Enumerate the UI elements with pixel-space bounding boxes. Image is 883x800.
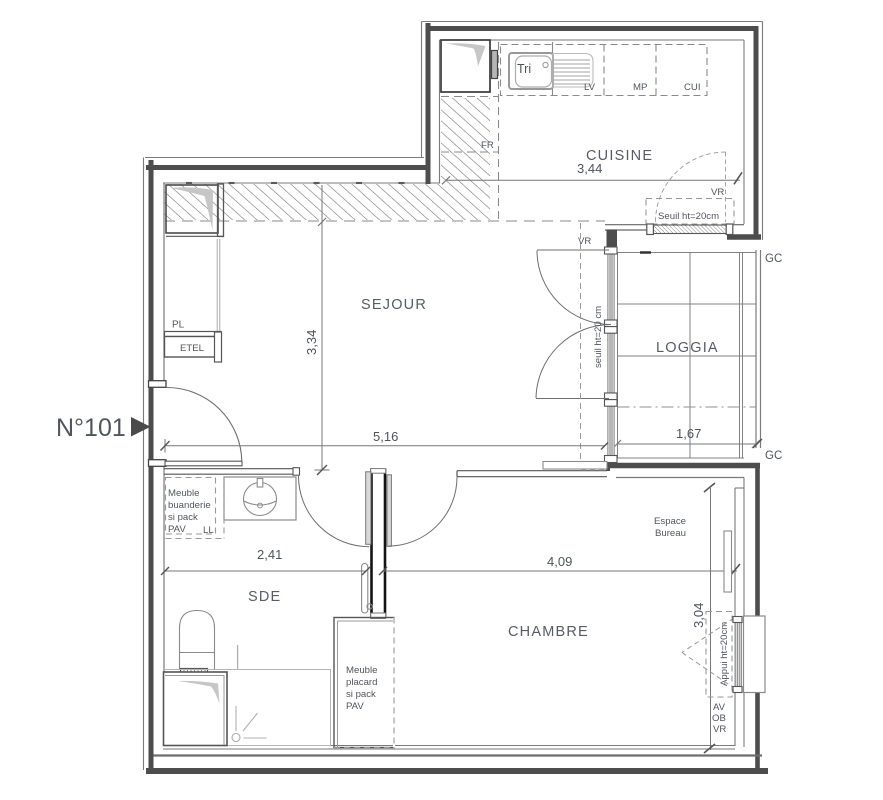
svg-text:3,44: 3,44 [577,161,602,176]
svg-text:Tri: Tri [517,62,531,76]
svg-text:N°101: N°101 [56,414,126,442]
svg-text:4,09: 4,09 [547,554,572,569]
svg-text:Meuble: Meuble [168,488,199,499]
svg-text:ETEL: ETEL [180,343,205,354]
svg-text:Appui ht=20cm: Appui ht=20cm [719,622,730,686]
svg-text:PAV: PAV [346,701,364,712]
svg-text:placard: placard [346,677,377,688]
svg-text:GC: GC [765,450,782,462]
svg-text:seuil ht=20 cm: seuil ht=20 cm [593,306,604,368]
svg-text:buanderie: buanderie [168,500,211,511]
svg-text:3,04: 3,04 [691,603,706,628]
svg-text:LV: LV [584,82,596,93]
svg-text:5,16: 5,16 [373,429,398,444]
svg-text:SEJOUR: SEJOUR [361,297,427,313]
svg-text:3,34: 3,34 [304,330,319,355]
svg-text:CHAMBRE: CHAMBRE [508,624,589,640]
svg-text:MP: MP [633,82,647,93]
svg-text:si pack: si pack [168,512,198,523]
svg-text:Bureau: Bureau [655,528,686,539]
svg-text:Seuil ht=20cm: Seuil ht=20cm [658,211,719,222]
svg-text:si pack: si pack [346,689,376,700]
svg-text:AV: AV [713,702,726,713]
svg-text:LL: LL [203,525,214,536]
svg-text:PL: PL [172,320,185,331]
svg-text:SDE: SDE [248,589,281,605]
svg-text:2,41: 2,41 [257,547,282,562]
svg-text:VR: VR [711,187,724,198]
svg-text:PAV: PAV [168,524,186,535]
svg-text:Espace: Espace [654,516,686,527]
svg-text:VR: VR [578,236,591,247]
svg-text:1,67: 1,67 [676,426,701,441]
svg-text:VR: VR [713,724,726,735]
svg-text:FR: FR [481,140,494,151]
svg-text:GC: GC [765,253,782,265]
svg-text:CUI: CUI [684,82,701,93]
svg-text:LOGGIA: LOGGIA [656,340,719,356]
svg-text:Meuble: Meuble [346,665,377,676]
svg-text:OB: OB [712,713,726,724]
